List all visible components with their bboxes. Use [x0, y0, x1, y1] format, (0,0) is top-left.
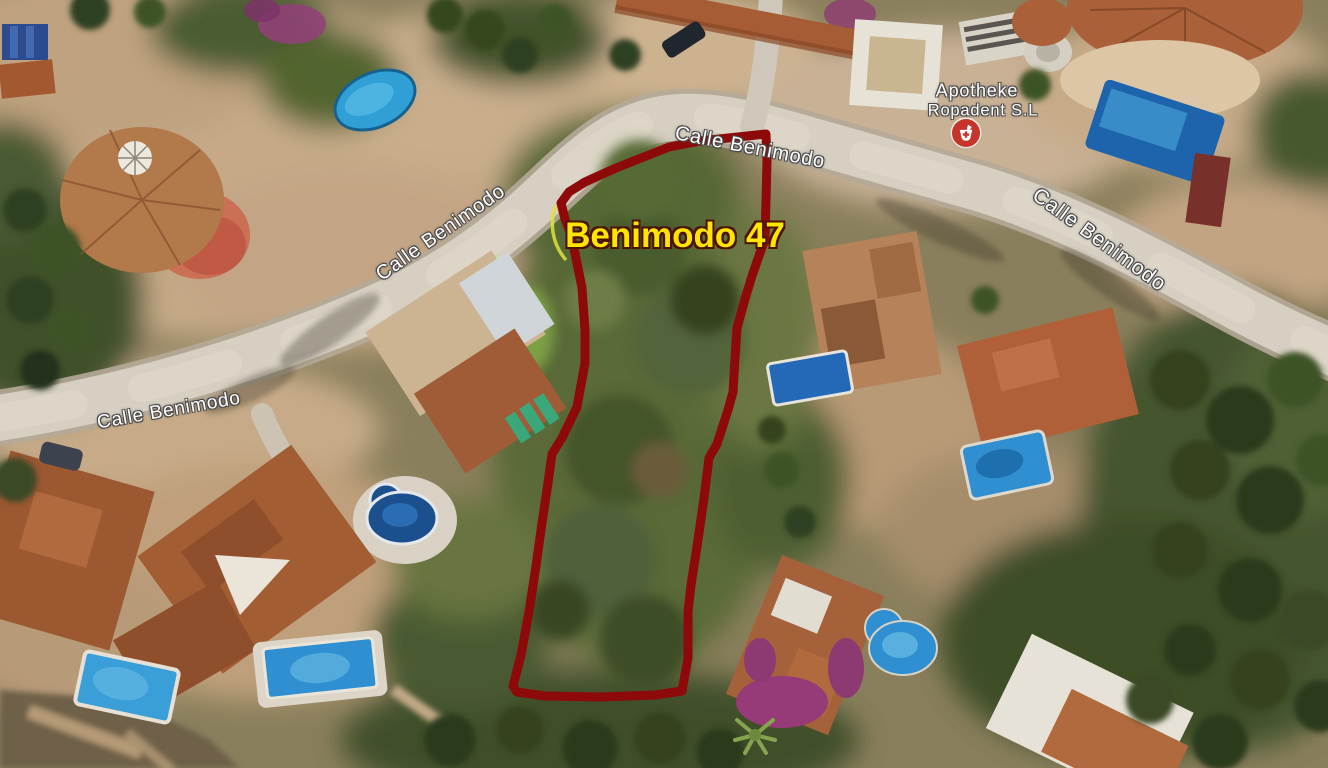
satellite-imagery [0, 0, 1328, 768]
satellite-map-canvas[interactable]: Benimodo 47 Calle Benimodo Calle Benimod… [0, 0, 1328, 768]
pharmacy-icon[interactable] [952, 119, 980, 147]
